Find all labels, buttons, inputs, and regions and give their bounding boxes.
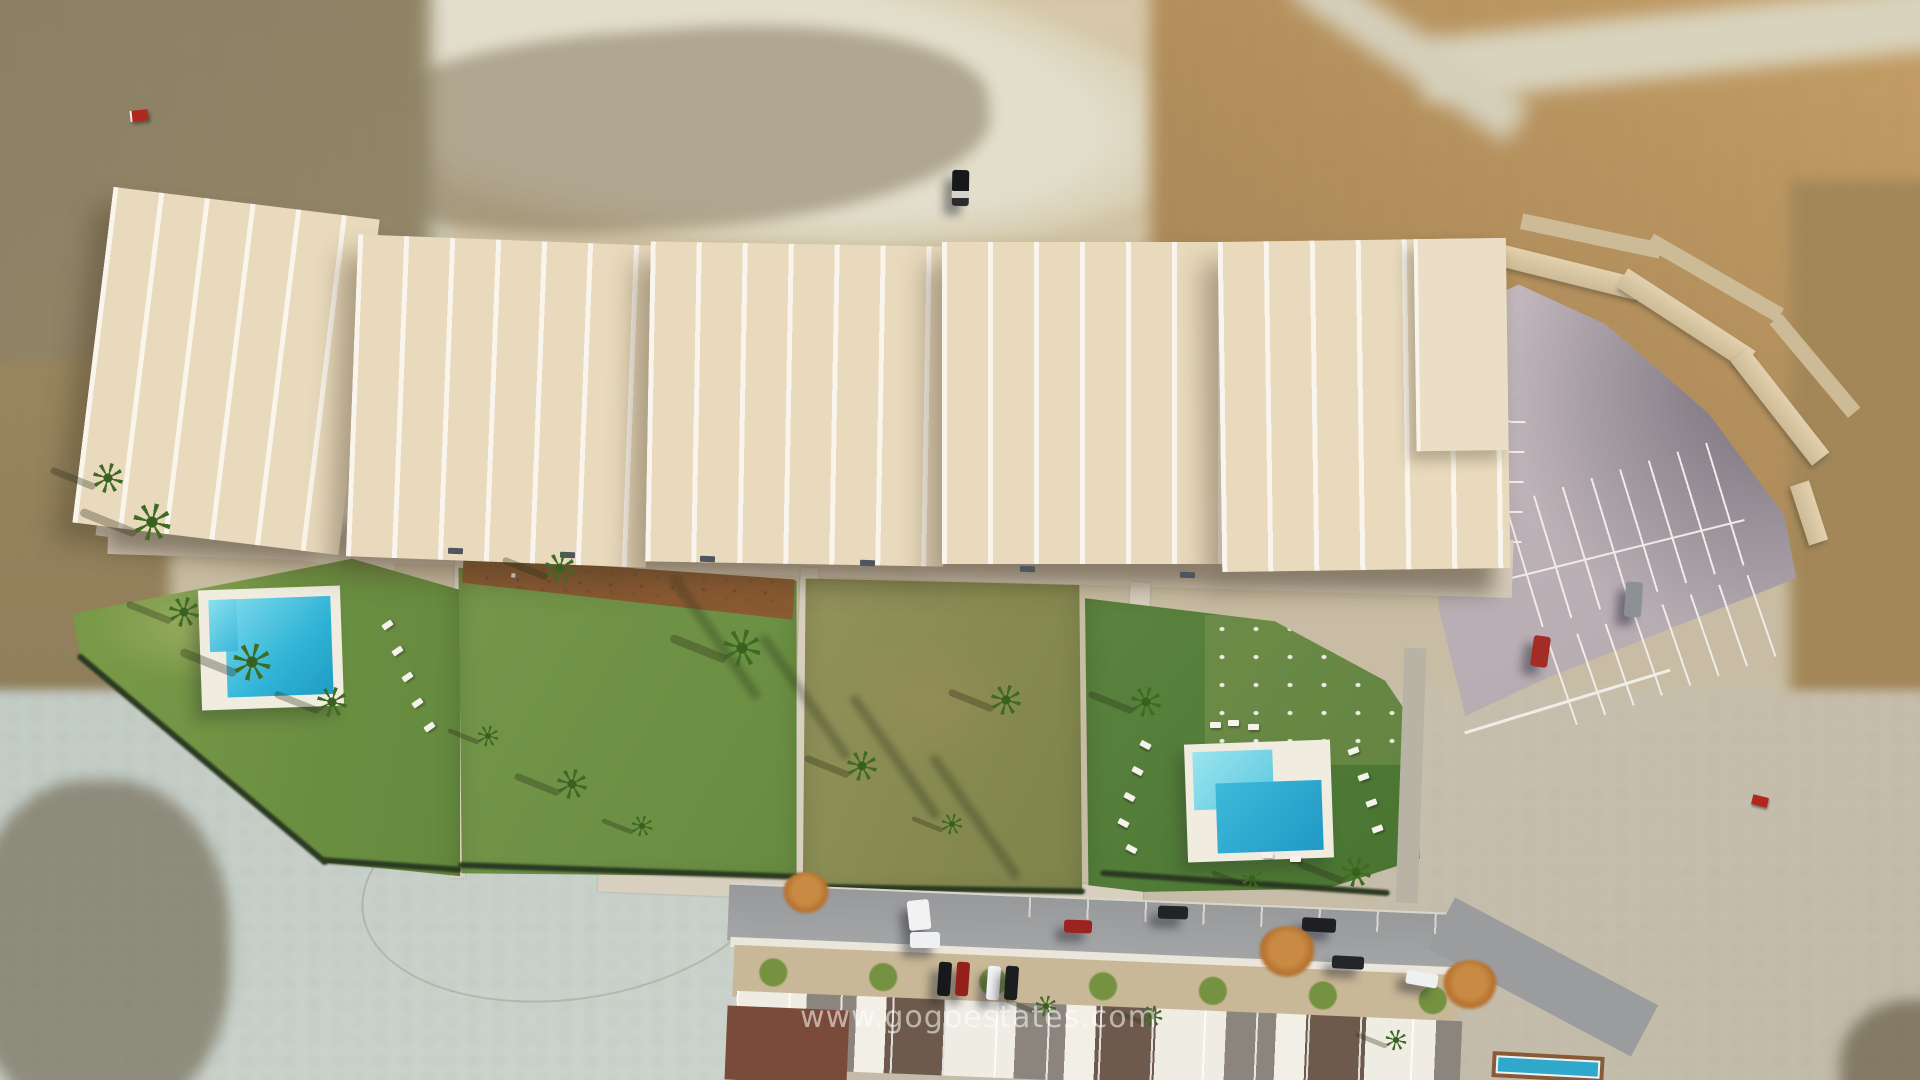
street-car-red xyxy=(955,962,970,997)
sun-lounger xyxy=(1210,722,1221,728)
bench xyxy=(1180,572,1195,579)
palm-tree xyxy=(317,687,347,717)
padel-court-2 xyxy=(511,573,515,577)
pickup-truck-sand xyxy=(952,170,970,206)
pool-right-deck xyxy=(1184,739,1334,862)
palm-tree xyxy=(723,629,761,667)
street-van-white xyxy=(906,899,931,931)
building-block-b xyxy=(346,234,658,567)
autumn-tree xyxy=(1442,960,1498,1010)
street-car-dark xyxy=(1302,917,1337,933)
street-car-red xyxy=(1064,920,1092,934)
sun-lounger xyxy=(1262,852,1273,858)
sun-lounger xyxy=(1248,724,1259,730)
lawn-center-olive xyxy=(800,572,1085,897)
aerial-render: www.gogoestates.com xyxy=(0,0,1920,1080)
unit-dividers xyxy=(942,242,1224,564)
palm-tree xyxy=(1386,1030,1407,1051)
existing-house-pool xyxy=(1491,1051,1604,1080)
building-block-a xyxy=(72,187,379,555)
street-car-dark xyxy=(1158,905,1188,919)
palm-tree xyxy=(942,814,963,835)
street-car-white xyxy=(910,932,940,948)
unit-dividers xyxy=(72,187,379,555)
palm-tree xyxy=(93,463,123,493)
palm-tree xyxy=(632,816,653,837)
autumn-tree xyxy=(1258,926,1316,978)
palm-tree xyxy=(1131,687,1161,717)
sun-lounger xyxy=(1228,720,1239,726)
unit-dividers xyxy=(645,241,949,566)
building-block-e xyxy=(1218,238,1511,572)
building-block-d xyxy=(942,242,1224,564)
palm-tree xyxy=(233,643,271,681)
bottom-left-dark-scrub xyxy=(0,780,230,1080)
palm-tree xyxy=(991,685,1021,715)
existing-pool-water xyxy=(1496,1055,1601,1078)
pool-right-water-deep xyxy=(1215,780,1323,854)
watermark: www.gogoestates.com xyxy=(800,1000,1158,1035)
palm-tree xyxy=(1242,868,1263,889)
building-block-c xyxy=(645,241,949,566)
palm-tree xyxy=(557,769,587,799)
palm-tree xyxy=(169,597,199,627)
street-car-white xyxy=(986,966,1001,1001)
autumn-tree xyxy=(782,872,830,914)
plain-roof-end xyxy=(1414,238,1509,451)
parked-car-grey xyxy=(1624,581,1643,617)
palm-tree xyxy=(133,503,171,541)
street-car-black xyxy=(1004,966,1019,1001)
palm-tree xyxy=(545,553,575,583)
red-site-sign xyxy=(129,109,148,122)
unit-dividers xyxy=(346,234,658,567)
bench xyxy=(1020,566,1035,573)
palm-tree xyxy=(847,751,877,781)
street-car-dark xyxy=(1332,955,1365,970)
bench xyxy=(448,548,463,555)
bench xyxy=(860,560,875,567)
street-car-black xyxy=(937,962,952,997)
bench xyxy=(700,556,715,563)
palm-tree xyxy=(1341,857,1371,887)
palm-tree xyxy=(478,726,499,747)
